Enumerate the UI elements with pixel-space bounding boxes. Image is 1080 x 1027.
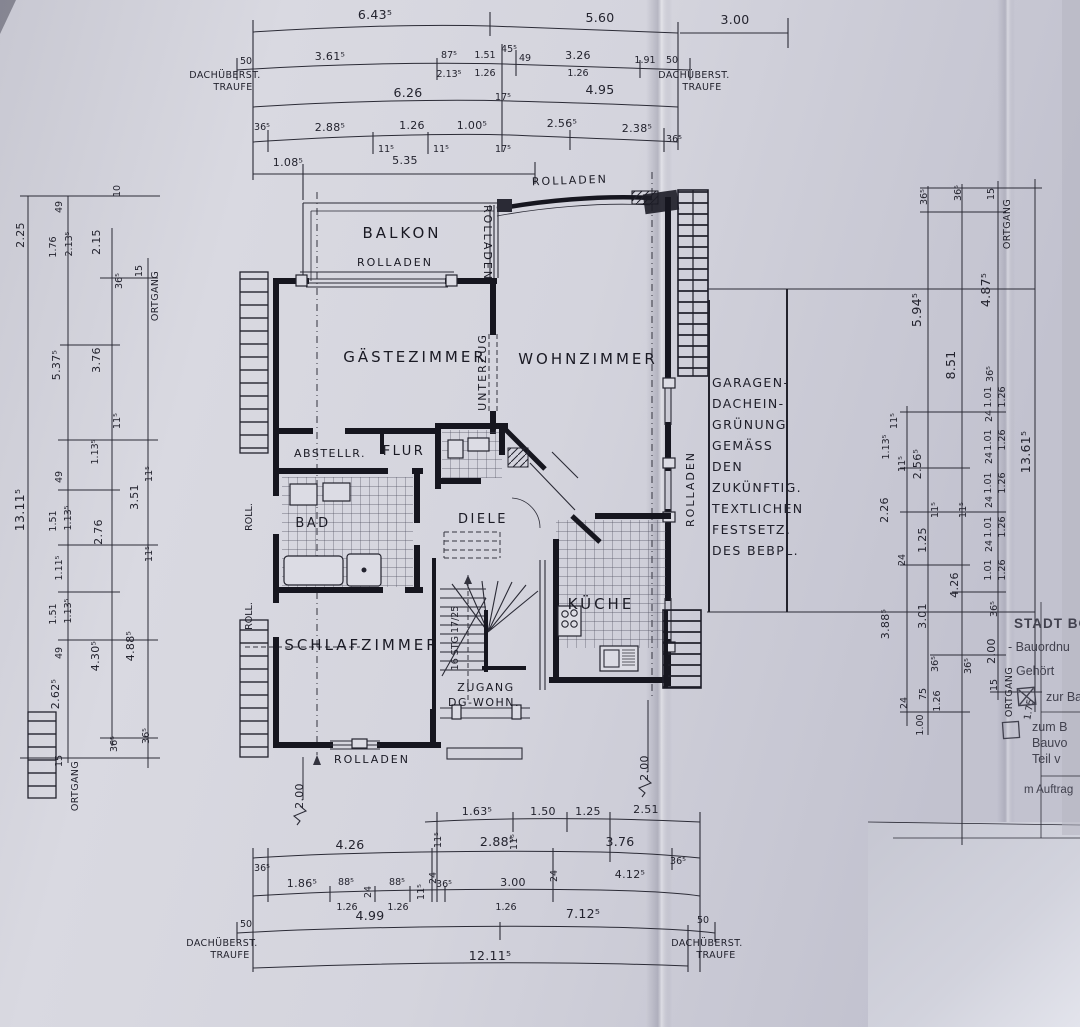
- dim: 2.00: [293, 783, 306, 809]
- dim: 17⁵: [495, 144, 511, 155]
- dim: 36⁵: [114, 273, 125, 289]
- dim: 1.13⁵: [90, 439, 101, 464]
- dim: 45⁵: [501, 44, 517, 55]
- rolladen-box: [497, 199, 512, 212]
- dim: 4.26: [948, 572, 961, 598]
- dim: 1.00: [915, 714, 926, 735]
- dim: 1.01: [983, 516, 994, 537]
- dim: 36⁵: [919, 189, 930, 205]
- dim: 75: [918, 688, 929, 700]
- dim: 4.87⁵: [978, 273, 993, 307]
- dim: 1.26: [997, 559, 1008, 580]
- dim: 1.26: [997, 472, 1008, 493]
- dim: 2.88⁵: [315, 121, 345, 134]
- stamp-line: Gehört: [1016, 664, 1055, 678]
- dim: 3.51: [128, 484, 141, 510]
- dim: 12.11⁵: [469, 948, 512, 963]
- zugang-label: DG-WOHN.: [448, 696, 520, 709]
- dim: 88⁵: [338, 877, 354, 888]
- dim: 3.76: [605, 834, 634, 849]
- dim: 1.51: [48, 510, 59, 531]
- dim: 5.37⁵: [50, 350, 63, 380]
- dim: 24: [899, 697, 910, 709]
- dim: 36⁵: [109, 736, 120, 752]
- dim: 2.00: [638, 755, 651, 781]
- dim: 2.15: [90, 229, 103, 255]
- dim: 36⁵: [141, 728, 152, 744]
- eaves-label: TRAUFE: [209, 950, 249, 961]
- room-label-diele: DIELE: [458, 512, 508, 527]
- dim: 4.95: [585, 82, 614, 97]
- room-label-gaestezimmer: GÄSTEZIMMER: [343, 347, 487, 366]
- dim: 11⁵: [433, 832, 444, 848]
- dim: 2.56⁵: [547, 117, 577, 130]
- dim: 50: [240, 919, 252, 930]
- room-label-bad: BAD: [295, 516, 330, 531]
- dim: 13.11⁵: [12, 489, 27, 532]
- eaves-label: TRAUFE: [695, 950, 735, 961]
- dim: 3.00: [500, 876, 526, 889]
- dim: 3.01: [916, 603, 929, 629]
- dim: 1.26: [997, 429, 1008, 450]
- dim: 11⁵: [889, 413, 900, 429]
- stamp-line: zur Ba: [1046, 690, 1080, 704]
- rolladen-label: ROLLADEN: [532, 173, 608, 189]
- eaves-label: DACHÜBERST.: [658, 70, 729, 81]
- dim: 1.13⁵: [63, 505, 74, 530]
- dim: 1.91: [634, 55, 655, 66]
- exterior-stair-left-upper: [240, 272, 268, 453]
- note-line: GEMÄSS: [712, 438, 773, 453]
- dim: 1.00⁵: [457, 119, 487, 132]
- stamp-line: zum B: [1032, 720, 1067, 734]
- dim: 4.30⁵: [89, 641, 102, 671]
- dim: 36⁵: [989, 601, 1000, 617]
- dim: 50: [697, 915, 709, 926]
- dim: 15: [989, 679, 1000, 691]
- dim: 36⁵: [666, 134, 682, 145]
- note-line: GARAGEN-: [712, 375, 789, 390]
- dim: 1.26: [336, 902, 357, 913]
- dim: 8.51: [943, 350, 958, 379]
- rolladen-box: [296, 275, 307, 286]
- dim: 2.38⁵: [622, 122, 652, 135]
- dim: 3.61⁵: [315, 50, 345, 63]
- verge-label: ORTGANG: [1004, 667, 1015, 717]
- zugang-label: ZUGANG: [457, 681, 514, 694]
- dim: 1.76: [48, 236, 59, 257]
- dim: 1.63⁵: [462, 805, 492, 818]
- dim: 2.25: [14, 222, 27, 248]
- dim: 36⁵: [254, 863, 270, 874]
- dim: 1.01: [983, 386, 994, 407]
- dim: 15: [986, 188, 997, 200]
- exterior-stair-left-lower: [240, 620, 268, 757]
- dim: 11⁵: [112, 413, 123, 429]
- dim: 36⁵: [953, 185, 964, 201]
- dim: 1.26: [474, 68, 495, 79]
- dim: 24: [984, 452, 995, 464]
- bathroom: BAD: [276, 471, 420, 590]
- verge-label: ORTGANG: [70, 761, 81, 811]
- dim: 17⁵: [495, 92, 511, 103]
- dim: 87⁵: [441, 50, 457, 61]
- verge-label: ORTGANG: [150, 271, 161, 321]
- dim: 4.26: [335, 837, 364, 852]
- dim: 24: [897, 554, 908, 566]
- dim: 1.50: [530, 805, 556, 818]
- dim: 3.88⁵: [879, 609, 892, 639]
- dim: 2.13⁵: [437, 69, 462, 80]
- dim: 50: [240, 56, 252, 67]
- dim: 15: [134, 265, 145, 277]
- rolladen-label: ROLLADEN: [357, 256, 433, 269]
- dim: 6.26: [393, 85, 422, 100]
- exterior-stair-right-small: [663, 610, 701, 688]
- floor-plan-drawing: 6.43⁵ 5.60 3.00 50 3.61⁵ 87⁵ 2.13⁵ 1.51 …: [0, 0, 1080, 1027]
- dim: 36⁵: [930, 656, 941, 672]
- rolladen-label-vertical: ROLLADEN: [481, 205, 494, 281]
- dim: 49: [519, 53, 531, 64]
- dim: 5.35: [392, 154, 418, 167]
- dim: 2.13⁵: [64, 231, 75, 256]
- dim: 24: [363, 886, 374, 898]
- dim: 3.00: [720, 12, 749, 27]
- rolladen-box: [446, 275, 457, 286]
- roll-label: ROLL.: [244, 602, 255, 630]
- stair-treads: [440, 586, 486, 678]
- dim: 1.51: [474, 50, 495, 61]
- eaves-label: TRAUFE: [212, 82, 252, 93]
- dim: 1.26: [997, 386, 1008, 407]
- dim: 4.99: [355, 908, 384, 923]
- rolladen-box: [663, 458, 675, 468]
- dim: 11⁵: [433, 144, 449, 155]
- dim: 1.01: [983, 472, 994, 493]
- note-line: FESTSETZ.: [712, 522, 791, 537]
- note-line: DES BEBPL.: [712, 543, 799, 558]
- dim: 11⁵: [897, 456, 908, 472]
- dim: 10: [112, 185, 123, 197]
- dim: 49: [54, 201, 65, 213]
- rolladen-box: [352, 739, 367, 748]
- dim: 2.26: [878, 497, 891, 523]
- dim: 36⁵: [963, 658, 974, 674]
- dim: 24: [984, 540, 995, 552]
- dim: 6.43⁵: [358, 7, 392, 22]
- unterzug-label: UNTERZUG: [476, 333, 489, 411]
- dim: 13.61⁵: [1018, 431, 1033, 474]
- dim: 4.88⁵: [124, 631, 137, 661]
- scanned-floor-plan-sheet: { "rooms": { "balkon":"BALKON","gaestezi…: [0, 0, 1080, 1027]
- eaves-label: DACHÜBERST.: [671, 938, 742, 949]
- dim: 36⁵: [670, 856, 686, 867]
- exterior-stair-right-long: [678, 190, 708, 376]
- eaves-label: TRAUFE: [681, 82, 721, 93]
- room-label-kueche: KÜCHE: [568, 594, 635, 613]
- dim: 2.88⁵: [480, 834, 514, 849]
- dim: 1.26: [495, 902, 516, 913]
- dim: 7.12⁵: [566, 906, 600, 921]
- dim: 4.12⁵: [615, 868, 645, 881]
- eaves-label: DACHÜBERST.: [186, 938, 257, 949]
- dim: 5.60: [585, 10, 614, 25]
- dim: 1.86⁵: [287, 877, 317, 890]
- dim: 1.25: [575, 805, 601, 818]
- dim: 1.13⁵: [881, 434, 892, 459]
- dim: 24: [549, 870, 560, 882]
- dim: 2.56⁵: [911, 449, 924, 479]
- dim: 1.51: [48, 603, 59, 624]
- dim: 1.01: [983, 429, 994, 450]
- dim: 1.13⁵: [63, 598, 74, 623]
- dim: 1.26: [387, 902, 408, 913]
- dim: 36⁵: [254, 122, 270, 133]
- room-label-wohnzimmer: WOHNZIMMER: [518, 350, 658, 368]
- stair-count-note: 16 STG 17/25: [450, 606, 461, 671]
- dim: 11⁵: [958, 502, 969, 518]
- room-label-schlafzimmer: SCHLAFZIMMER: [284, 636, 439, 654]
- rolladen-label: ROLLADEN: [334, 753, 410, 766]
- note-line: TEXTLICHEN: [711, 501, 804, 516]
- note-line: DACHEIN-: [712, 396, 785, 411]
- dim: 50: [666, 55, 678, 66]
- dim: 2.51: [633, 803, 659, 816]
- rolladen-label-vertical: ROLLADEN: [684, 451, 697, 527]
- note-line: ZUKÜNFTIG.: [712, 479, 802, 495]
- dim: 88⁵: [389, 877, 405, 888]
- dim: 36⁵: [436, 879, 452, 890]
- dim: 1.26: [567, 68, 588, 79]
- dim: 2.62⁵: [49, 679, 62, 709]
- dim: 49: [54, 471, 65, 483]
- dim: 3.76: [90, 347, 103, 373]
- dim: 1.26: [399, 119, 425, 132]
- dim: 24: [984, 410, 995, 422]
- dim: 1.08⁵: [273, 156, 303, 169]
- stamp-title: STADT BO: [1014, 616, 1080, 631]
- dim: 2.76: [92, 519, 105, 545]
- room-label-abstellraum: ABSTELLR.: [294, 447, 366, 460]
- stamp-line: Teil v: [1032, 752, 1061, 766]
- dim: 1.25: [916, 527, 929, 553]
- dim: 1.26: [932, 690, 943, 711]
- dim: 11⁵: [930, 502, 941, 518]
- dim: 1.26: [997, 516, 1008, 537]
- room-label-balkon: BALKON: [363, 224, 442, 242]
- dim: 11⁵: [144, 546, 155, 562]
- paper-patch-corner: [868, 822, 1080, 1027]
- dim: 11⁵: [144, 466, 155, 482]
- dim: 1.11⁵: [54, 555, 65, 580]
- room-label-flur: FLUR: [383, 444, 426, 459]
- stamp-line: m Auftrag: [1024, 784, 1073, 796]
- note-line: DEN: [712, 459, 743, 474]
- dim: 24: [984, 496, 995, 508]
- right-edge-shadow: [1062, 0, 1080, 835]
- verge-label: ORTGANG: [1002, 199, 1013, 249]
- stamp-line: - Bauordnu: [1008, 640, 1070, 654]
- dim: 1.01: [983, 559, 994, 580]
- dim: 36⁵: [985, 366, 996, 382]
- dim: 5.94⁵: [909, 293, 924, 327]
- dim: 2.00: [985, 638, 998, 664]
- rolladen-box: [663, 378, 675, 388]
- exterior-stair-bottom-left: [28, 712, 56, 798]
- roll-label: ROLL.: [244, 503, 255, 531]
- eaves-label: DACHÜBERST.: [189, 70, 260, 81]
- stamp-line: Bauvo: [1032, 736, 1067, 750]
- dim: 3.26: [565, 49, 591, 62]
- dim: 49: [54, 647, 65, 659]
- dim: 11⁵: [416, 884, 427, 900]
- note-line: GRÜNUNG: [712, 416, 787, 432]
- wc: [438, 426, 505, 486]
